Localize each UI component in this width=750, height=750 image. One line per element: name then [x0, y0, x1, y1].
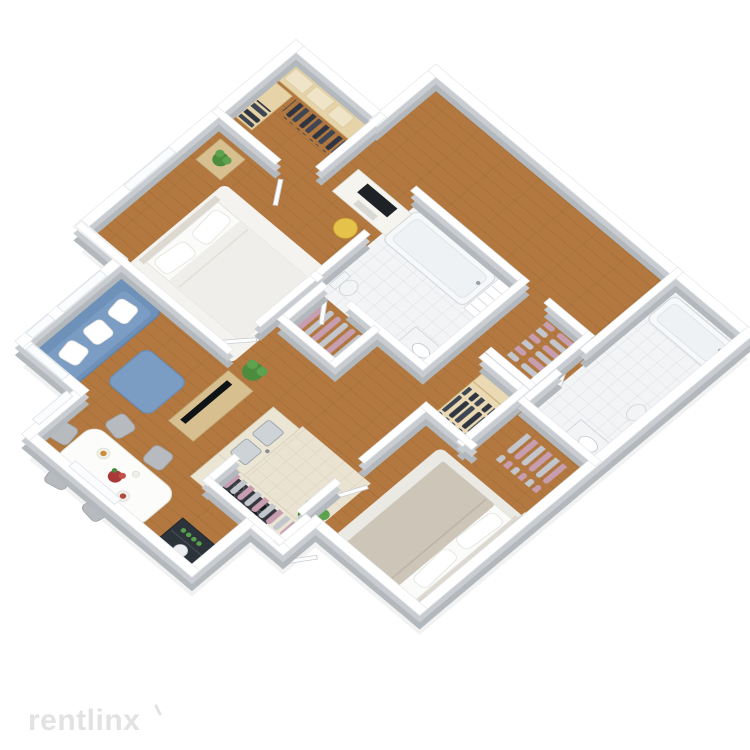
floorplan-image: rentlinx	[0, 0, 750, 750]
rentlinx-watermark: rentlinx	[28, 704, 140, 737]
watermark-tick	[156, 706, 160, 714]
